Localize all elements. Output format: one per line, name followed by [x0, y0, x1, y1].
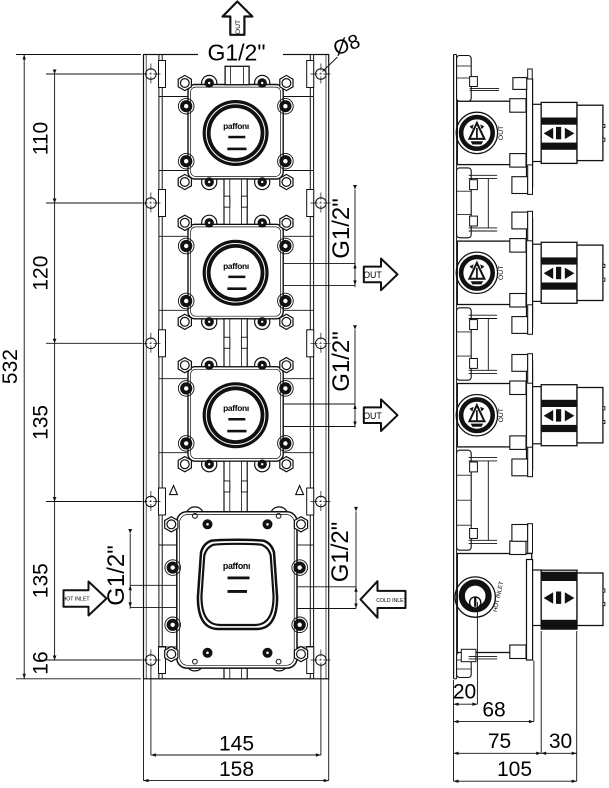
- svg-text:120: 120: [30, 256, 53, 291]
- svg-text:HOT INLET: HOT INLET: [63, 597, 91, 603]
- svg-text:105: 105: [497, 758, 532, 781]
- svg-text:OUT: OUT: [498, 126, 505, 140]
- svg-text:paffonı: paffonı: [223, 121, 249, 131]
- svg-text:158: 158: [219, 758, 254, 781]
- svg-text:OUT: OUT: [235, 20, 242, 34]
- svg-text:68: 68: [482, 699, 505, 722]
- svg-text:135: 135: [30, 563, 53, 598]
- svg-text:OUT: OUT: [363, 270, 382, 280]
- svg-text:110: 110: [30, 122, 53, 155]
- svg-text:OUT: OUT: [498, 266, 505, 280]
- svg-text:20: 20: [453, 681, 476, 704]
- svg-text:paffonı: paffonı: [223, 261, 249, 271]
- svg-text:paffonı: paffonı: [223, 403, 249, 413]
- svg-text:30: 30: [549, 730, 572, 753]
- svg-text:G1/2": G1/2": [328, 198, 355, 259]
- svg-text:OUT: OUT: [363, 411, 382, 421]
- svg-text:145: 145: [219, 733, 254, 756]
- svg-text:G1/2": G1/2": [207, 40, 265, 66]
- svg-text:G1/2": G1/2": [327, 522, 354, 583]
- svg-text:G1/2": G1/2": [103, 545, 130, 606]
- svg-text:G1/2": G1/2": [328, 331, 355, 392]
- svg-text:135: 135: [30, 405, 53, 440]
- svg-text:16: 16: [30, 651, 53, 674]
- svg-text:paffonı: paffonı: [223, 561, 250, 571]
- svg-text:75: 75: [488, 730, 511, 753]
- svg-text:COLD INLET: COLD INLET: [376, 598, 407, 604]
- svg-text:532: 532: [0, 349, 22, 384]
- svg-text:OUT: OUT: [498, 408, 505, 422]
